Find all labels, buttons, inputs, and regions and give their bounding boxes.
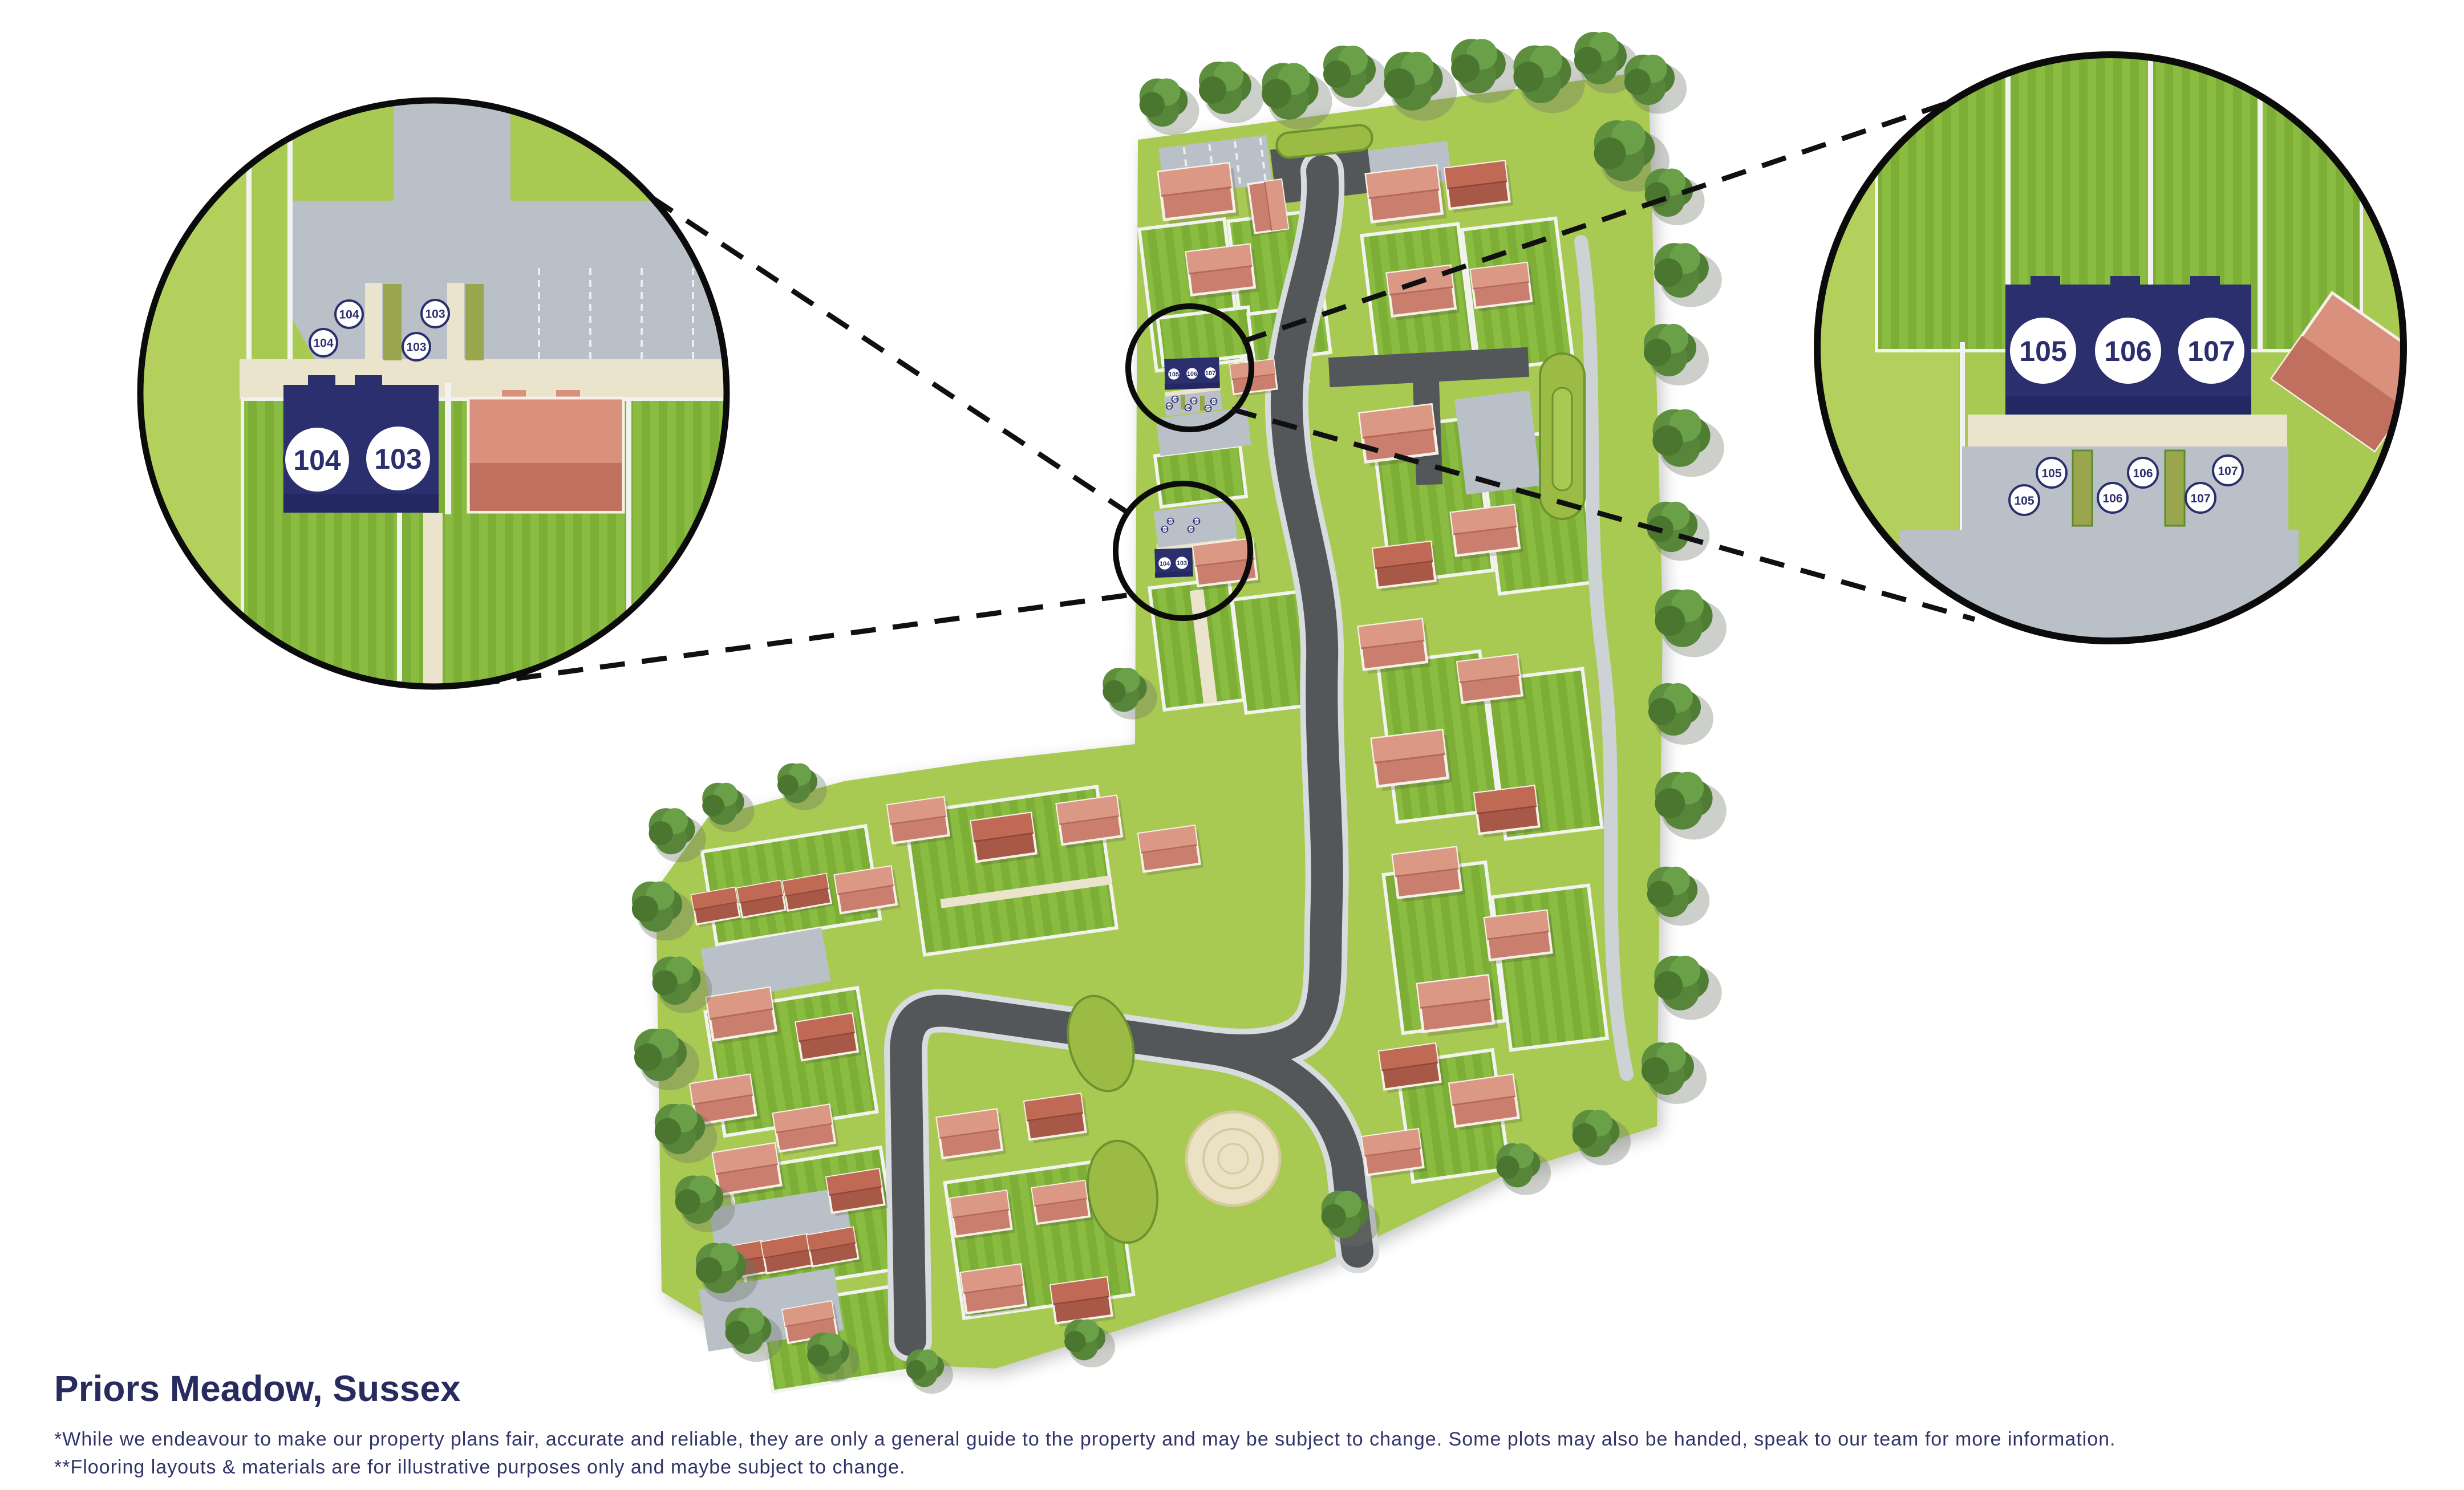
svg-text:105: 105: [2019, 335, 2066, 367]
house: [937, 1109, 1006, 1163]
map-plot-badge[interactable]: 103: [1175, 556, 1189, 570]
house: [1362, 1128, 1427, 1179]
house: [1186, 244, 1259, 299]
page-title: Priors Meadow, Sussex: [54, 1367, 2421, 1410]
svg-text:104: 104: [293, 444, 341, 476]
masterplan: 105 106 107 105 105 106 106 107 107 104 …: [632, 32, 1727, 1394]
svg-text:104: 104: [339, 308, 359, 322]
plot-badge-103[interactable]: 103: [365, 425, 431, 492]
parking-badge: 105: [2009, 485, 2039, 515]
svg-text:107: 107: [1205, 407, 1211, 411]
house: [971, 813, 1040, 866]
neighbour-house: [468, 390, 623, 512]
parking-badge: 103: [403, 333, 430, 360]
plot-badge-105[interactable]: 105: [2009, 316, 2077, 385]
svg-text:104: 104: [1168, 519, 1174, 523]
disclaimer-line-1: *While we endeavour to make our property…: [54, 1426, 2421, 1454]
svg-text:106: 106: [1191, 399, 1197, 403]
map-plot-badge[interactable]: 105: [1168, 368, 1180, 380]
svg-text:107: 107: [2187, 335, 2235, 367]
house: [1366, 165, 1446, 227]
house: [1032, 1180, 1093, 1228]
house: [1138, 825, 1203, 875]
svg-text:104: 104: [1160, 561, 1170, 567]
svg-text:106: 106: [2104, 335, 2151, 367]
house: [1393, 847, 1465, 902]
svg-text:103: 103: [374, 443, 422, 475]
parking-badge: 106: [2098, 483, 2127, 513]
svg-text:105: 105: [1166, 404, 1173, 408]
house: [1470, 262, 1535, 312]
svg-text:107: 107: [2190, 492, 2210, 505]
svg-text:107: 107: [1205, 370, 1215, 377]
house: [1230, 359, 1280, 397]
house: [1372, 730, 1452, 791]
callout-left-104-103: 104 104 103 103 104 103: [140, 100, 736, 691]
svg-text:107: 107: [2218, 465, 2238, 478]
svg-text:103: 103: [1188, 527, 1194, 531]
house: [1373, 541, 1439, 592]
map-plot-badge[interactable]: 107: [1204, 367, 1217, 379]
house: [1449, 1074, 1522, 1131]
svg-text:103: 103: [425, 308, 445, 321]
svg-text:103: 103: [406, 341, 426, 354]
plot-badge-104[interactable]: 104: [284, 427, 350, 493]
parking-badge: 107: [2186, 483, 2215, 513]
svg-text:104: 104: [313, 337, 333, 350]
site-plan-canvas: 105 106 107 105 105 106 106 107 107 104 …: [0, 0, 2464, 1490]
house: [1445, 161, 1513, 213]
parking-badge: 107: [2213, 456, 2243, 485]
house: [1451, 505, 1523, 560]
callout-right-105-107: 105 105 106 106 107 107 105 106 107: [1817, 54, 2435, 684]
svg-text:103: 103: [1177, 560, 1187, 567]
site-plan-page: 105 106 107 105 105 106 106 107 107 104 …: [0, 0, 2464, 1490]
plot-badge-107[interactable]: 107: [2177, 316, 2246, 385]
svg-text:106: 106: [2102, 492, 2122, 505]
parking-area: [293, 201, 730, 370]
house: [961, 1264, 1030, 1318]
svg-text:105: 105: [1172, 397, 1178, 401]
house: [1158, 163, 1239, 225]
house: [950, 1190, 1015, 1240]
house: [887, 797, 953, 847]
svg-text:106: 106: [1185, 406, 1192, 410]
map-plot-badge[interactable]: 104: [1158, 557, 1172, 570]
house: [1379, 1043, 1444, 1093]
svg-text:105: 105: [1169, 371, 1179, 378]
house: [1457, 655, 1526, 707]
house: [1359, 619, 1431, 674]
disclaimer-line-2: **Flooring layouts & materials are for i…: [54, 1454, 2421, 1481]
plot-badge-106[interactable]: 106: [2094, 316, 2162, 385]
svg-text:106: 106: [2133, 467, 2153, 480]
house: [1024, 1093, 1089, 1143]
house: [1485, 910, 1555, 964]
svg-text:105: 105: [2014, 494, 2034, 508]
parking-badge: 104: [335, 301, 363, 328]
parking-badge: 105: [2037, 458, 2066, 488]
svg-text:103: 103: [1194, 519, 1200, 523]
footer: Priors Meadow, Sussex *While we endeavou…: [54, 1367, 2421, 1482]
svg-text:106: 106: [1187, 371, 1197, 377]
house: [1245, 180, 1288, 237]
map-plot-badge[interactable]: 106: [1186, 367, 1198, 380]
house: [1417, 975, 1498, 1037]
svg-text:107: 107: [1211, 400, 1217, 404]
parking-badge: 106: [2128, 458, 2158, 488]
svg-text:105: 105: [2041, 467, 2061, 480]
house: [1057, 795, 1126, 849]
parking-badge: 103: [422, 300, 449, 327]
parking-badge: 104: [310, 329, 337, 356]
svg-text:104: 104: [1162, 527, 1168, 531]
play-area: [1186, 1112, 1280, 1205]
house: [1474, 786, 1543, 838]
